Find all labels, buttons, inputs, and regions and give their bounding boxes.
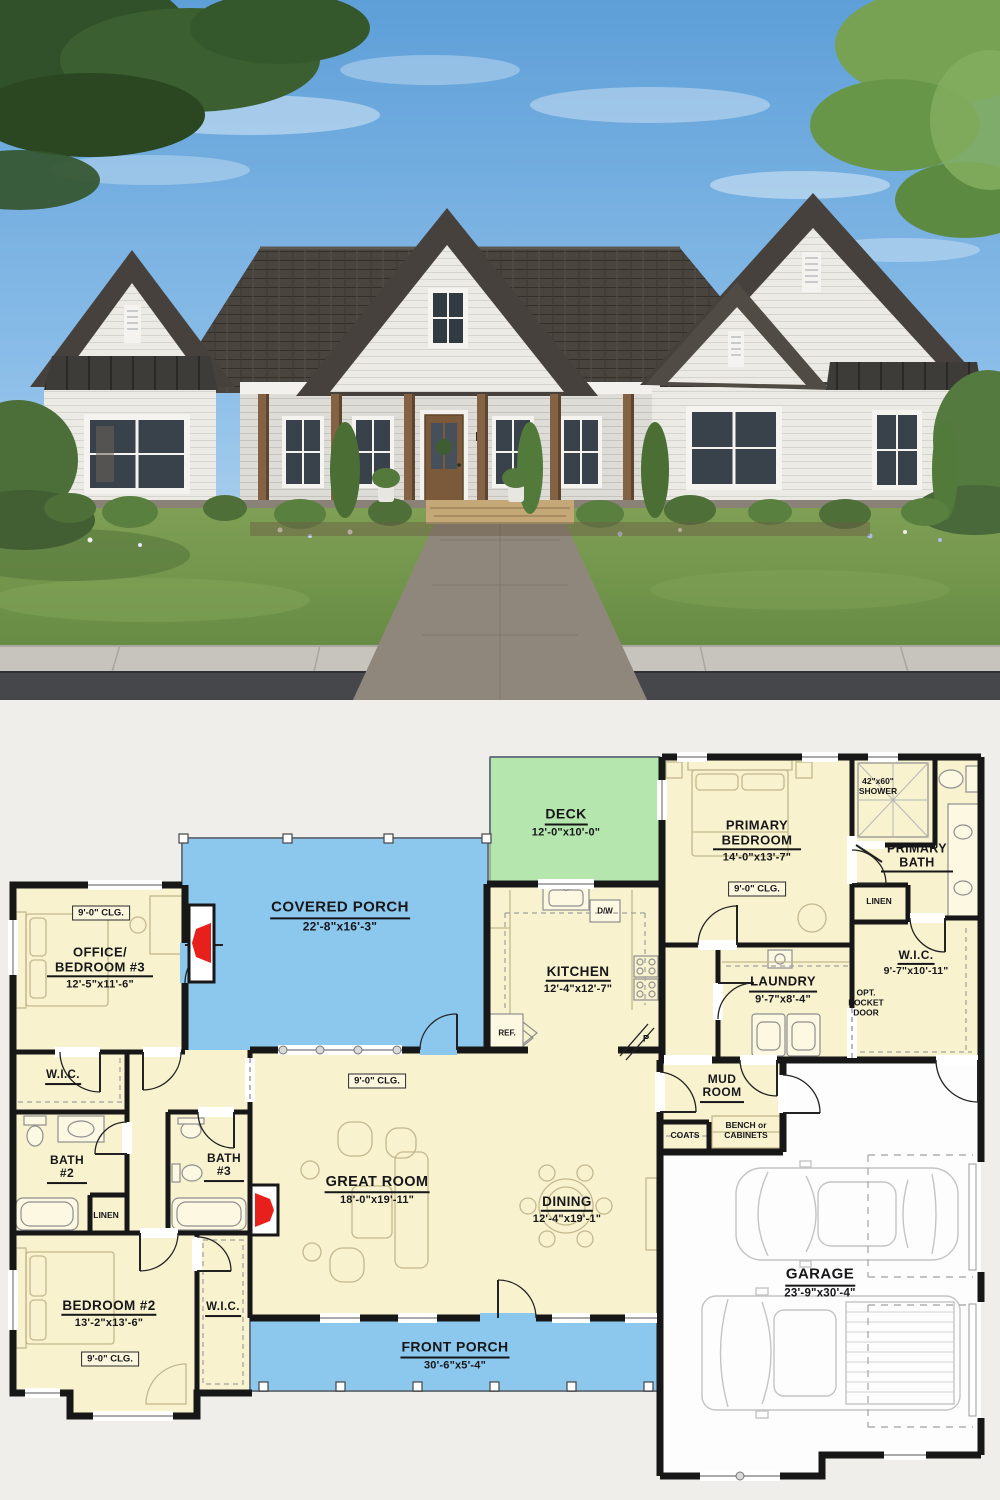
room-dims: 9'-7"x8'-4" — [749, 993, 817, 1005]
room-dims: 14'-0"x13'-7" — [713, 851, 801, 863]
room-name: COVERED PORCH — [270, 899, 410, 919]
room-name: DINING — [541, 1194, 593, 1212]
room-dims: 9'-7"x10'-11" — [884, 966, 949, 978]
label-opt-pocket-door: OPT. POCKET DOOR — [843, 988, 889, 1017]
room-label-covered-porch: COVERED PORCH 22'-8"x16'-3" — [270, 898, 410, 933]
label-bench-cabinets: BENCH or CABINETS — [716, 1121, 776, 1141]
room-name: BATH #2 — [47, 1154, 87, 1184]
ceiling-badge-great-room: 9'-0" CLG. — [348, 1074, 406, 1089]
house-photo — [0, 0, 1000, 702]
room-name: PRIMARY BATH — [881, 842, 953, 873]
room-dims: 12'-0"x10'-0" — [532, 826, 600, 838]
front-door — [420, 410, 468, 505]
left-awning — [44, 356, 218, 390]
ceiling-badge-bedroom2: 9'-0" CLG. — [81, 1352, 139, 1367]
room-dims: 12'-4"x12'-7" — [544, 983, 612, 995]
label-linen-bath2: LINEN — [93, 1211, 119, 1221]
ceiling-badge-office: 9'-0" CLG. — [72, 906, 130, 921]
room-name: W.I.C. — [897, 949, 934, 965]
gable-vent — [728, 331, 744, 367]
room-dims: 13'-2"x13'-6" — [61, 1317, 156, 1329]
room-dims: 30'-6"x5'-4" — [400, 1359, 509, 1371]
mulch-bed — [250, 522, 870, 536]
room-label-deck: DECK 12'-0"x10'-0" — [532, 806, 600, 839]
label-shower: 42"x60" SHOWER — [851, 777, 905, 797]
lawn-highlight — [0, 578, 310, 622]
label-coats: COATS — [670, 1131, 699, 1141]
gable-vent — [802, 252, 821, 292]
room-dims: 12'-5"x11'-6" — [47, 978, 153, 990]
room-name: BEDROOM #2 — [61, 1298, 156, 1316]
screenshot-root: DECK 12'-0"x10'-0" COVERED PORCH 22'-8"x… — [0, 0, 1000, 1500]
room-label-garage: GARAGE 23'-9"x30'-4" — [784, 1266, 855, 1301]
room-name: LAUNDRY — [749, 975, 817, 993]
room-name: BATH #3 — [204, 1152, 244, 1182]
room-label-bath3: BATH #3 — [204, 1152, 244, 1182]
room-dims: 23'-9"x30'-4" — [784, 1287, 855, 1300]
left-wing-window — [84, 414, 190, 494]
label-pantry: P — [643, 1035, 649, 1046]
room-label-kitchen: KITCHEN 12'-4"x12'-7" — [544, 963, 612, 995]
room-label-primary-bath: PRIMARY BATH — [881, 842, 953, 873]
room-name: DECK — [544, 807, 587, 826]
floor-plan-drawing — [0, 700, 1000, 1500]
floor-plan: DECK 12'-0"x10'-0" COVERED PORCH 22'-8"x… — [0, 700, 1000, 1500]
attic-window — [428, 288, 468, 348]
room-label-mud-room: MUD ROOM — [700, 1073, 744, 1103]
room-name: W.I.C. — [45, 1069, 81, 1085]
label-dw: D/W — [597, 906, 613, 915]
room-name: GREAT ROOM — [325, 1174, 430, 1193]
gable-vent — [124, 305, 141, 343]
room-label-wic-primary: W.I.C. 9'-7"x10'-11" — [884, 946, 949, 978]
room-name: GARAGE — [785, 1267, 855, 1287]
room-name: MUD ROOM — [700, 1073, 744, 1103]
room-name: PRIMARY BEDROOM — [713, 818, 801, 850]
room-label-wic-bedroom2: W.I.C. — [205, 1297, 241, 1317]
room-dims: 18'-0"x19'-11" — [325, 1194, 430, 1206]
room-name: FRONT PORCH — [400, 1340, 509, 1359]
ceiling-badge-primary: 9'-0" CLG. — [728, 882, 786, 897]
lawn-highlight — [650, 570, 950, 610]
label-ref: REF. — [498, 1028, 515, 1037]
room-label-wic-left: W.I.C. — [45, 1065, 81, 1085]
room-label-great-room: GREAT ROOM 18'-0"x19'-11" — [325, 1173, 430, 1207]
room-name: OFFICE/ BEDROOM #3 — [47, 945, 153, 977]
room-name: KITCHEN — [546, 964, 611, 982]
room-label-office-bedroom3: OFFICE/ BEDROOM #3 12'-5"x11'-6" — [47, 945, 153, 990]
covered-porch-floor — [182, 838, 487, 1050]
room-label-laundry: LAUNDRY 9'-7"x8'-4" — [749, 973, 817, 1006]
room-label-front-porch: FRONT PORCH 30'-6"x5'-4" — [400, 1339, 509, 1372]
room-name: W.I.C. — [205, 1301, 241, 1317]
room-label-primary-bedroom: PRIMARY BEDROOM 14'-0"x13'-7" — [713, 818, 801, 863]
room-label-bath2: BATH #2 — [47, 1154, 87, 1184]
room-dims: 22'-8"x16'-3" — [270, 920, 410, 933]
front-steps — [426, 500, 574, 524]
room-label-dining: DINING 12'-4"x19'-1" — [533, 1193, 601, 1225]
room-dims: 12'-4"x19'-1" — [533, 1213, 601, 1225]
label-linen-primary: LINEN — [866, 897, 892, 907]
room-label-bedroom2: BEDROOM #2 13'-2"x13'-6" — [61, 1297, 156, 1329]
